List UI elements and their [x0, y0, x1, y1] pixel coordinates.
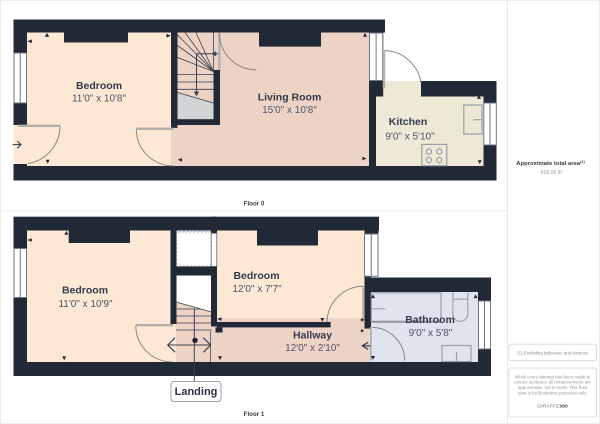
svg-text:12'0" x 2'10": 12'0" x 2'10" [285, 343, 340, 354]
svg-text:Floor 0: Floor 0 [244, 201, 265, 208]
svg-text:approximate, not to scale. Thi: approximate, not to scale. This floor [518, 385, 588, 390]
svg-text:Kitchen: Kitchen [389, 116, 428, 128]
svg-text:Bedroom: Bedroom [62, 285, 108, 297]
svg-text:GIRAFFE360: GIRAFFE360 [537, 404, 568, 409]
svg-text:Bedroom: Bedroom [233, 270, 279, 282]
svg-text:15'0" x 10'8": 15'0" x 10'8" [262, 105, 317, 116]
svg-text:While every attempt has been m: While every attempt has been made to [515, 374, 591, 379]
svg-text:Floor 1: Floor 1 [244, 411, 265, 418]
svg-text:618.06 ft²: 618.06 ft² [541, 170, 563, 176]
svg-text:Bedroom: Bedroom [76, 80, 122, 92]
svg-text:Landing: Landing [175, 386, 218, 398]
svg-text:Hallway: Hallway [293, 330, 332, 342]
svg-text:11'0" x 10'9": 11'0" x 10'9" [58, 299, 113, 310]
svg-text:12'0" x 7'7": 12'0" x 7'7" [232, 284, 282, 295]
svg-text:Bathroom: Bathroom [405, 314, 455, 326]
svg-text:(1) Excluding balconies and te: (1) Excluding balconies and terraces [517, 350, 589, 355]
svg-text:9'0" x 5'10": 9'0" x 5'10" [385, 132, 435, 143]
svg-text:Living Room: Living Room [258, 92, 322, 104]
svg-text:9'0" x 5'8": 9'0" x 5'8" [409, 328, 453, 339]
svg-text:11'0" x 10'8": 11'0" x 10'8" [72, 94, 127, 105]
svg-text:ensure accuracy, all measureme: ensure accuracy, all measurements are [514, 380, 591, 385]
svg-text:Approximate total area(1): Approximate total area(1) [516, 160, 585, 167]
svg-text:plan is for illustrative purpo: plan is for illustrative purposes only. [518, 391, 587, 396]
